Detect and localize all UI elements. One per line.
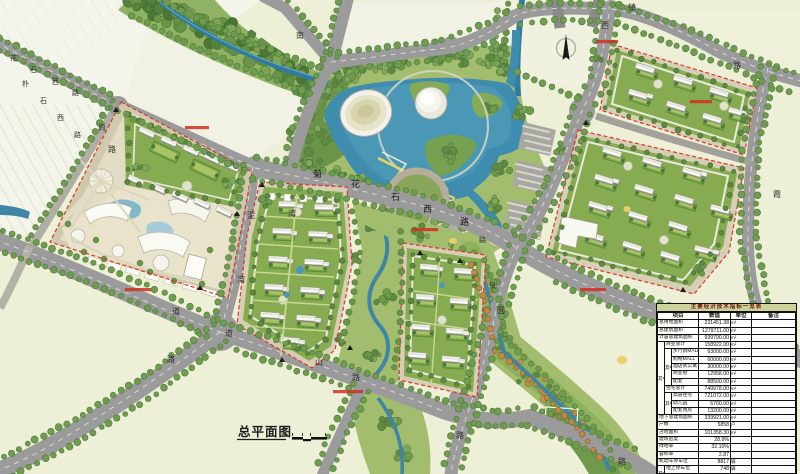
svg-text:路: 路 [74,130,81,139]
svg-text:路: 路 [456,430,464,440]
svg-text:湾: 湾 [288,208,296,218]
svg-text:路: 路 [108,144,116,154]
svg-text:凤: 凤 [489,282,496,290]
svg-text:石: 石 [391,192,400,202]
svg-text:路: 路 [618,456,626,466]
svg-text:花: 花 [10,53,17,62]
svg-text:路: 路 [733,60,741,70]
svg-text:南: 南 [296,30,304,40]
svg-text:湾: 湾 [237,274,245,284]
svg-text:西: 西 [423,204,432,214]
svg-text:总平面图: 总平面图 [238,424,292,439]
svg-text:泥: 泥 [247,211,255,220]
svg-text:道: 道 [172,306,180,316]
svg-text:路: 路 [460,216,469,227]
svg-text:石: 石 [40,97,47,105]
svg-text:霞: 霞 [773,190,781,199]
svg-text:路: 路 [167,354,175,364]
svg-text:路: 路 [479,235,486,244]
svg-text:西: 西 [57,114,64,122]
svg-text:石: 石 [30,66,37,74]
svg-text:花: 花 [351,178,360,189]
svg-text:山: 山 [315,357,323,367]
svg-text:西: 西 [601,21,609,30]
svg-text:尚: 尚 [98,122,106,132]
svg-text:菊: 菊 [313,169,322,179]
svg-text:路: 路 [72,88,79,97]
svg-text:镇: 镇 [628,2,636,12]
svg-text:圆: 圆 [497,306,505,315]
svg-text:道: 道 [225,328,233,338]
svg-text:路: 路 [352,372,360,382]
svg-text:朴: 朴 [22,79,29,88]
svg-text:西: 西 [52,78,59,86]
